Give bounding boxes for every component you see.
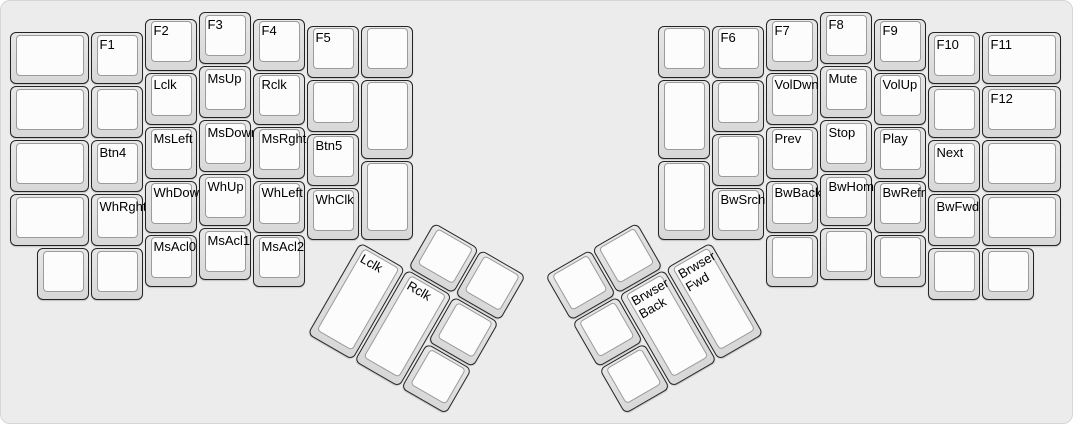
keycap-top [880, 237, 921, 278]
keycap-top: WhDown [151, 183, 192, 224]
keycap-top [43, 251, 84, 292]
key-f7[interactable]: F7 [766, 19, 818, 71]
keycap-top [16, 35, 84, 76]
keycap-top [97, 251, 138, 292]
key-bwsrch[interactable]: BwSrch [712, 188, 764, 240]
keycap-top: BwSrch [718, 190, 759, 231]
key-label: MsUp [208, 71, 242, 86]
keycap-top [417, 227, 473, 283]
key-msacl1[interactable]: MsAcl1 [199, 228, 251, 280]
keycap-top [16, 197, 84, 238]
keycap-top [367, 163, 408, 231]
key-f6[interactable]: F6 [712, 26, 764, 78]
keycap-top: Btn4 [97, 143, 138, 184]
keycap-top [97, 89, 138, 130]
key-next[interactable]: Next [928, 140, 980, 192]
key-label: VolDwn [775, 77, 819, 92]
keycap-top: MsAcl1 [205, 231, 246, 272]
key-label: F2 [154, 23, 169, 38]
key-msdown[interactable]: MsDown [199, 120, 251, 172]
keyboard-canvas: F1Btn4WhRghtF2LclkMsLeftWhDownMsAcl0F3Ms… [0, 0, 1073, 424]
keycap-top [16, 143, 84, 184]
keycap-top: WhLeft [259, 183, 300, 224]
keycap-top [988, 197, 1056, 238]
keycap-top: F9 [880, 21, 921, 62]
key-f8[interactable]: F8 [820, 12, 872, 64]
keycap-top: F10 [934, 35, 975, 76]
key-blank[interactable] [658, 161, 710, 240]
key-whdown[interactable]: WhDown [145, 181, 197, 233]
key-blank[interactable] [982, 248, 1034, 300]
keycap-top: F1 [97, 35, 138, 76]
key-label: Mute [829, 71, 858, 86]
keycap-top [313, 82, 354, 123]
keycap-top: BwRefr [880, 183, 921, 224]
keycap-top [664, 163, 705, 231]
key-label: WhRght [100, 199, 147, 214]
keycap-top: Lclk [151, 75, 192, 116]
keycap-top: F3 [205, 15, 246, 56]
key-blank[interactable] [37, 248, 89, 300]
keycap-top: Rclk [259, 75, 300, 116]
keycap-top [826, 231, 867, 272]
key-label: Prev [775, 131, 802, 146]
key-msacl2[interactable]: MsAcl2 [253, 235, 305, 287]
key-label: MsRght [262, 131, 307, 146]
key-f3[interactable]: F3 [199, 12, 251, 64]
keycap-top: Prev [772, 129, 813, 170]
keycap-top [367, 28, 408, 69]
keycap-top: MsLeft [151, 129, 192, 170]
keycap-top [718, 136, 759, 177]
keycap-top: Play [880, 129, 921, 170]
key-blank[interactable] [658, 80, 710, 159]
keycap-top: F5 [313, 28, 354, 69]
key-f1[interactable]: F1 [91, 32, 143, 84]
key-f2[interactable]: F2 [145, 19, 197, 71]
key-lclk[interactable]: Lclk [145, 73, 197, 125]
key-stop[interactable]: Stop [820, 120, 872, 172]
key-label: F7 [775, 23, 790, 38]
keycap-top: Btn5 [313, 136, 354, 177]
keycap-top: F8 [826, 15, 867, 56]
key-voldwn[interactable]: VolDwn [766, 73, 818, 125]
key-label: Rclk [405, 277, 434, 303]
key-label: BwBack [775, 185, 822, 200]
key-label: Rclk [262, 77, 287, 92]
keycap-top [988, 251, 1029, 292]
key-label: F1 [100, 37, 115, 52]
keycap-top [464, 254, 520, 310]
key-label: F3 [208, 17, 223, 32]
keycap-top [934, 251, 975, 292]
key-label: F9 [883, 23, 898, 38]
key-f4[interactable]: F4 [253, 19, 305, 71]
key-play[interactable]: Play [874, 127, 926, 179]
key-volup[interactable]: VolUp [874, 73, 926, 125]
keycap-top: F12 [988, 89, 1056, 130]
key-blank[interactable] [712, 80, 764, 132]
key-blank[interactable] [10, 194, 89, 246]
key-label: MsDown [208, 125, 259, 140]
key-label: F12 [991, 91, 1013, 106]
keycap-top: Next [934, 143, 975, 184]
key-blank[interactable] [10, 32, 89, 84]
keycap-top [664, 82, 705, 150]
keycap-top: F7 [772, 21, 813, 62]
key-label: F8 [829, 17, 844, 32]
key-label: BwRefr [883, 185, 926, 200]
keycap-top: Mute [826, 69, 867, 110]
keycap-top: MsAcl0 [151, 237, 192, 278]
key-whup[interactable]: WhUp [199, 174, 251, 226]
key-label: Btn4 [100, 145, 127, 160]
key-blank[interactable] [766, 235, 818, 287]
key-blank[interactable] [91, 86, 143, 138]
key-btn4[interactable]: Btn4 [91, 140, 143, 192]
key-label: Stop [829, 125, 856, 140]
keycap-top: BwBack [772, 183, 813, 224]
key-label: BwFwd [937, 199, 980, 214]
key-label: F5 [316, 30, 331, 45]
key-label: WhClk [316, 192, 354, 207]
keycap-top: BwFwd [934, 197, 975, 238]
key-label: MsAcl0 [154, 239, 197, 254]
key-f5[interactable]: F5 [307, 26, 359, 78]
key-blank[interactable] [820, 228, 872, 280]
key-label: BwSrch [721, 192, 766, 207]
key-blank[interactable] [928, 248, 980, 300]
keycap-top [934, 89, 975, 130]
key-bwback[interactable]: BwBack [766, 181, 818, 233]
key-blank[interactable] [658, 26, 710, 78]
key-blank[interactable] [982, 194, 1061, 246]
key-blank[interactable] [982, 140, 1061, 192]
key-blank[interactable] [361, 80, 413, 159]
key-blank[interactable] [307, 80, 359, 132]
keycap-top [718, 82, 759, 123]
keycap-top [598, 227, 654, 283]
key-msleft[interactable]: MsLeft [145, 127, 197, 179]
keycap-top [664, 28, 705, 69]
keycap-top: MsAcl2 [259, 237, 300, 278]
key-label: Lclk [154, 77, 177, 92]
key-blank[interactable] [928, 86, 980, 138]
key-f12[interactable]: F12 [982, 86, 1061, 138]
keycap-top: BwHome [826, 177, 867, 218]
keycap-top: F2 [151, 21, 192, 62]
keycap-top [367, 82, 408, 150]
key-whleft[interactable]: WhLeft [253, 181, 305, 233]
key-blank[interactable] [712, 134, 764, 186]
keycap-top: F6 [718, 28, 759, 69]
key-msup[interactable]: MsUp [199, 66, 251, 118]
keycap-top [988, 143, 1056, 184]
key-rclk[interactable]: Rclk [253, 73, 305, 125]
key-blank[interactable] [874, 235, 926, 287]
key-mute[interactable]: Mute [820, 66, 872, 118]
keycap-top: MsRght [259, 129, 300, 170]
key-label: F11 [991, 37, 1012, 52]
keycap-top [772, 237, 813, 278]
key-label: Lclk [358, 250, 386, 275]
key-blank[interactable] [91, 248, 143, 300]
key-label: Next [937, 145, 964, 160]
key-prev[interactable]: Prev [766, 127, 818, 179]
key-label: F4 [262, 23, 277, 38]
keycap-top: WhClk [313, 190, 354, 231]
keycap-top: VolUp [880, 75, 921, 116]
key-f11[interactable]: F11 [982, 32, 1061, 84]
key-blank[interactable] [10, 86, 89, 138]
key-label: Btn5 [316, 138, 343, 153]
key-btn5[interactable]: Btn5 [307, 134, 359, 186]
key-label: MsLeft [154, 131, 193, 146]
keycap-top: MsUp [205, 69, 246, 110]
key-label: MsAcl1 [208, 233, 251, 248]
key-whclk[interactable]: WhClk [307, 188, 359, 240]
key-label: F10 [937, 37, 959, 52]
keycap-top: WhUp [205, 177, 246, 218]
key-f9[interactable]: F9 [874, 19, 926, 71]
key-label: F6 [721, 30, 736, 45]
key-label: Brwser Fwd [675, 247, 725, 293]
keycap-top [551, 254, 607, 310]
keycap-top: VolDwn [772, 75, 813, 116]
key-label: MsAcl2 [262, 239, 305, 254]
keycap-top: WhRght [97, 197, 138, 238]
key-label: WhLeft [262, 185, 303, 200]
key-whrght[interactable]: WhRght [91, 194, 143, 246]
key-bwfwd[interactable]: BwFwd [928, 194, 980, 246]
key-bwhome[interactable]: BwHome [820, 174, 872, 226]
key-bwrefr[interactable]: BwRefr [874, 181, 926, 233]
keycap-top: F4 [259, 21, 300, 62]
keycap-top: F11 [988, 35, 1056, 76]
key-blank[interactable] [361, 26, 413, 78]
keycap-top: Stop [826, 123, 867, 164]
key-msacl0[interactable]: MsAcl0 [145, 235, 197, 287]
key-blank[interactable] [361, 161, 413, 240]
key-msrght[interactable]: MsRght [253, 127, 305, 179]
key-label: WhUp [208, 179, 244, 194]
key-label: VolUp [883, 77, 918, 92]
keycap-top: MsDown [205, 123, 246, 164]
keycap-top [16, 89, 84, 130]
key-label: Play [883, 131, 908, 146]
key-f10[interactable]: F10 [928, 32, 980, 84]
key-blank[interactable] [10, 140, 89, 192]
